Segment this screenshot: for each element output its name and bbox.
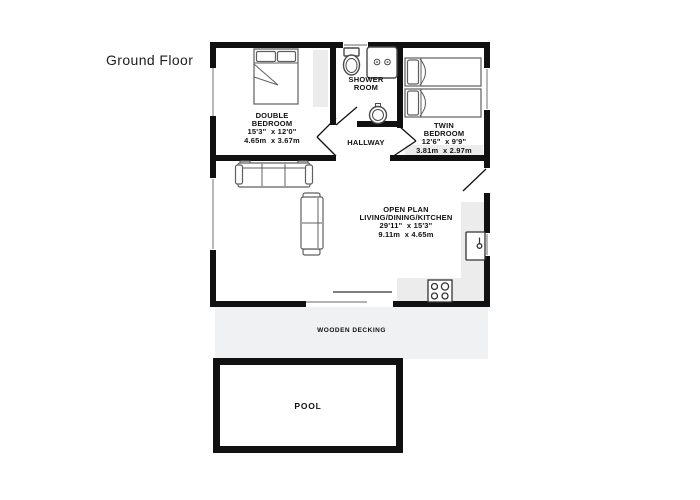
wall-hall-left xyxy=(210,155,336,161)
kitchen-sink-icon xyxy=(466,232,485,260)
dims-metric: 3.81m x 2.97m xyxy=(404,147,484,155)
wall-right-3 xyxy=(484,193,490,233)
twin-bed-icon xyxy=(405,89,481,117)
hob-icon xyxy=(428,280,452,302)
double-bed-icon xyxy=(254,49,298,104)
shower-icon xyxy=(367,47,397,78)
wall-right-4 xyxy=(484,256,490,307)
pillow xyxy=(257,52,276,62)
wall-hall-right xyxy=(390,155,490,161)
wall-right-1 xyxy=(484,42,490,68)
pillow xyxy=(408,91,419,115)
label-wooden-decking: WOODEN DECKING xyxy=(215,327,488,334)
label-double-bedroom: DOUBLE BEDROOM 15'3" x 12'0" 4.65m x 3.6… xyxy=(211,112,333,145)
label-shower-room: SHOWER ROOM xyxy=(337,76,395,92)
wall-shower-twin-divider xyxy=(397,42,403,128)
floor-plan-page: Ground Floor xyxy=(0,0,700,500)
sofa-3-seat-icon xyxy=(236,161,313,187)
twin-bed-icon xyxy=(405,58,481,86)
armrest xyxy=(236,165,243,184)
door-shower-room-leaf xyxy=(336,107,357,125)
armrest xyxy=(306,165,313,184)
label-open-plan: OPEN PLAN LIVING/DINING/KITCHEN 29'11" x… xyxy=(346,206,466,239)
wall-bottom-left xyxy=(210,301,306,307)
label-twin-bedroom: TWIN BEDROOM 12'6" x 9'9" 3.81m x 2.97m xyxy=(404,122,484,155)
dims-metric: 9.11m x 4.65m xyxy=(346,231,466,239)
toilet-icon xyxy=(344,48,360,75)
sofa-2-seat-icon xyxy=(301,193,323,255)
wall-left-1 xyxy=(210,42,216,68)
pillow xyxy=(278,52,296,62)
wardrobe-shading-double-bedroom xyxy=(313,50,328,107)
label-hallway: HALLWAY xyxy=(336,139,396,147)
label-pool: POOL xyxy=(213,401,403,411)
basin-icon xyxy=(370,104,387,124)
door-exterior-right-leaf xyxy=(463,169,486,191)
dims-metric: 4.65m x 3.67m xyxy=(211,137,333,145)
wall-left-3 xyxy=(210,250,216,307)
wall-top-left xyxy=(210,42,343,48)
pillow xyxy=(408,60,419,84)
